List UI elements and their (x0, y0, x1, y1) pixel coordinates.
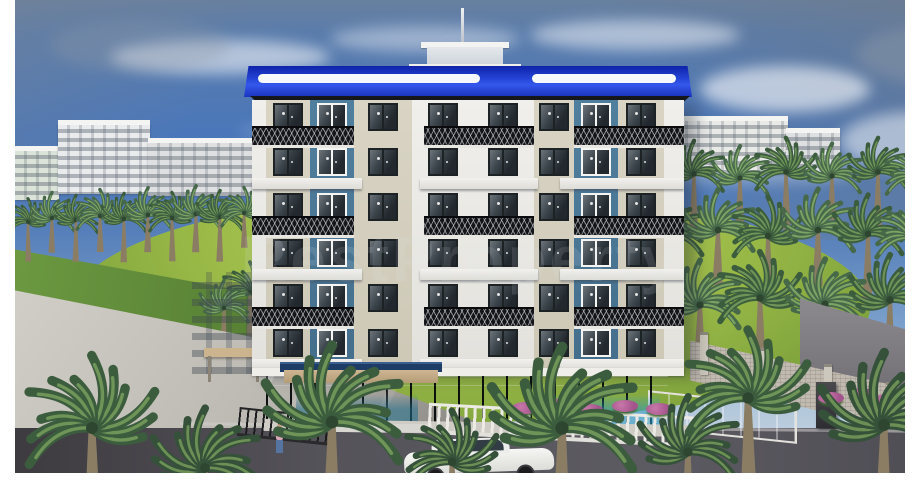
palm-tree (683, 330, 813, 480)
palm-tree (23, 355, 161, 480)
palm-tree (403, 411, 500, 480)
frame-margin (0, 0, 15, 480)
palm-tree (259, 345, 405, 480)
architectural-render: RestProperty (0, 0, 920, 480)
palm-tree (148, 408, 262, 480)
foreground-palms-layer (0, 0, 920, 480)
frame-margin (0, 473, 920, 480)
frame-margin (905, 0, 920, 480)
palm-tree (485, 347, 639, 480)
